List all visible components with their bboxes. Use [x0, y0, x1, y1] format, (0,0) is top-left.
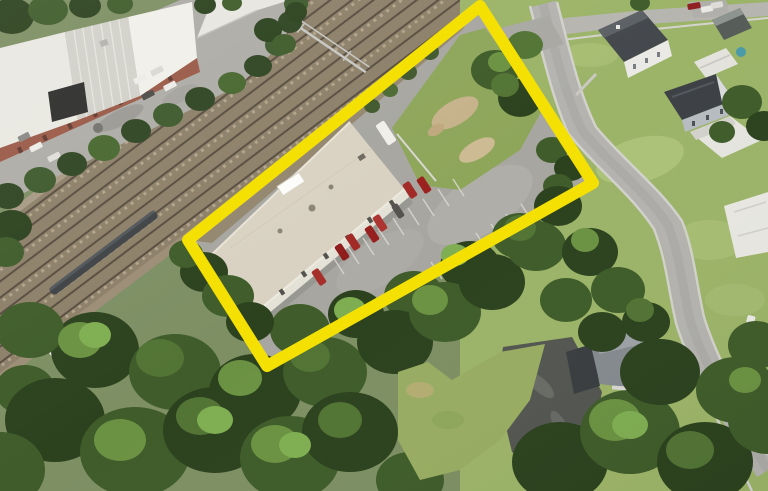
- aerial-photo-canvas: [0, 0, 768, 491]
- aerial-photo: [0, 0, 768, 491]
- light-overlay: [0, 0, 768, 491]
